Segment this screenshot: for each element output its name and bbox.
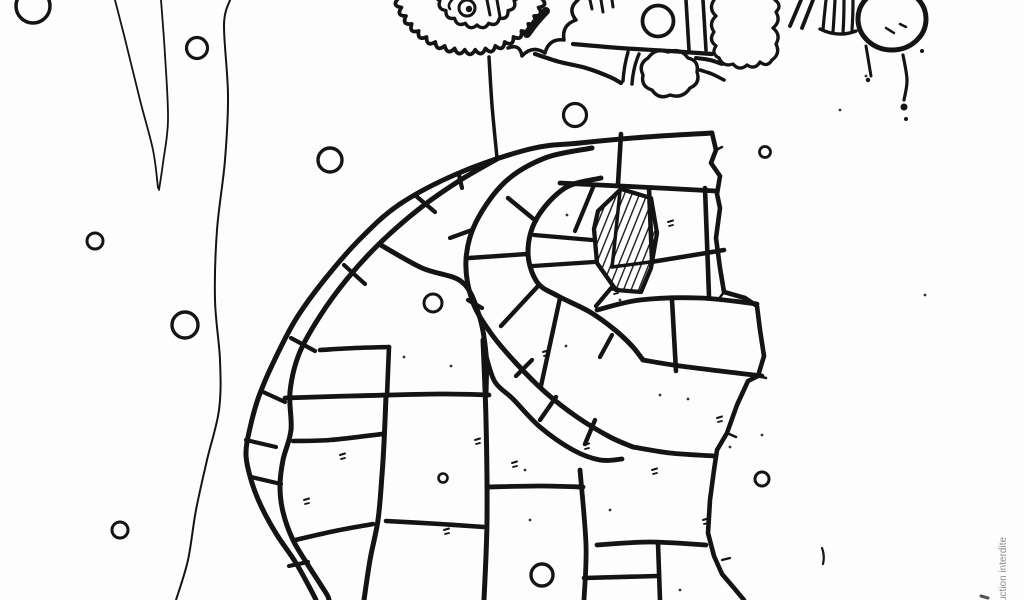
svg-text:uction interdite: uction interdite	[998, 537, 1009, 600]
